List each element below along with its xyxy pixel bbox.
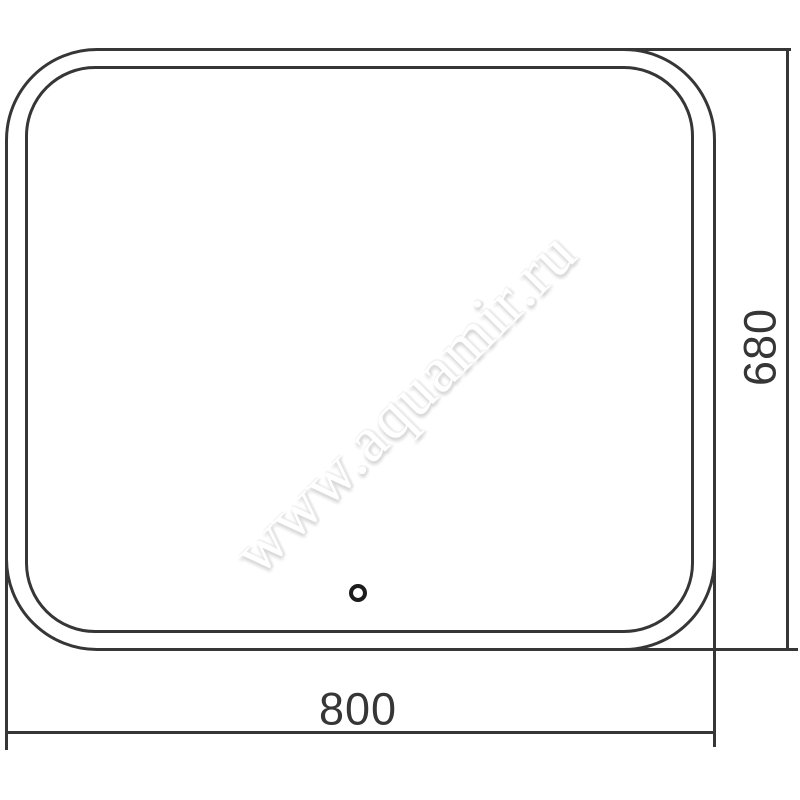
mirror-inner-outline xyxy=(25,66,694,633)
width-dimension-label: 800 xyxy=(319,687,397,732)
height-dimension-label: 680 xyxy=(738,308,783,386)
drawing-canvas: www.aquamir.ru 800 680 xyxy=(0,0,800,800)
extension-line-left-bottom xyxy=(5,520,8,750)
extension-line-bottom-right xyxy=(600,648,798,651)
dimension-line-height xyxy=(786,50,789,649)
extension-line-right-bottom xyxy=(713,560,716,747)
extension-line-top-right xyxy=(600,48,791,51)
touch-sensor-dot xyxy=(349,584,367,602)
